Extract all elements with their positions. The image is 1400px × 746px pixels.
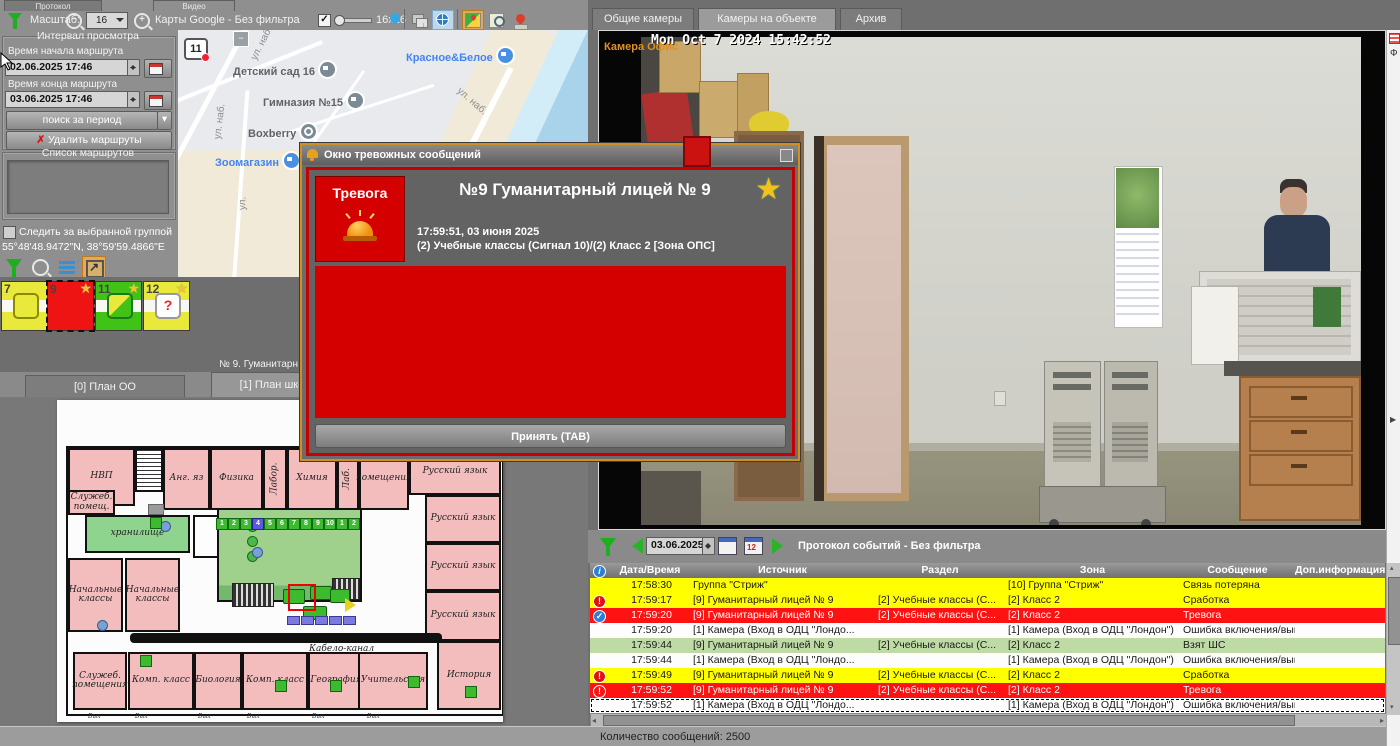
object-tile-9[interactable]: 9★ — [47, 281, 94, 331]
plan-room-Комп. класс: Комп. класс — [128, 652, 194, 710]
cell-Источник: [9] Гуманитарный лицей № 9 — [690, 593, 875, 608]
cell-Доп.информация — [1295, 593, 1385, 608]
cell-Зона: [2] Класс 2 — [1005, 668, 1180, 683]
cell-Источник: [1] Камера (Вход в ОДЦ "Лондо... — [690, 623, 875, 638]
log-filter-funnel-icon[interactable] — [600, 538, 616, 549]
room-label: Начальные классы — [126, 586, 179, 605]
application-window: Протокол Видео Масштаб: − 16 + Карты Goo… — [0, 0, 1400, 746]
lock-icon — [496, 46, 515, 65]
table-row[interactable]: !17:59:49[9] Гуманитарный лицей № 9[2] У… — [590, 668, 1385, 683]
scale-select[interactable]: 16 — [86, 12, 128, 29]
room-label: Химия — [296, 474, 327, 483]
plan-room-blank — [135, 448, 163, 492]
camera-tab-2[interactable]: Камеры на объекте — [698, 8, 836, 30]
cell-Сообщение: Ошибка включения/выключения за... — [1180, 623, 1295, 638]
cell-Источник: [9] Гуманитарный лицей № 9 — [690, 608, 875, 623]
follow-group-label: Следить за выбранной группой — [19, 226, 172, 238]
plan-room-История: История — [437, 641, 501, 710]
map-collapse-control[interactable]: − — [233, 31, 249, 47]
strip-red-icon — [1389, 33, 1400, 44]
alarm-restore-icon[interactable] — [780, 149, 793, 162]
strip-letter: Ф — [1390, 48, 1398, 59]
room-label: Служеб. помещения — [72, 672, 128, 691]
route-end-spinner[interactable] — [127, 91, 140, 108]
cell-Сообщение: Сработка — [1180, 668, 1295, 683]
dot-icon — [299, 122, 318, 141]
icon-size-checkbox[interactable]: ✓ — [318, 14, 331, 27]
cell-Дата/Время: 17:59:49 — [610, 668, 690, 683]
poi-label: Гимназия №15 — [263, 97, 343, 109]
left-bottom-scrollbar[interactable] — [0, 726, 588, 746]
poi-label: Детский сад 16 — [233, 66, 315, 78]
map-poi-Boxberry[interactable]: Boxberry — [248, 122, 318, 141]
previous-day-icon[interactable] — [624, 538, 643, 554]
table-row[interactable]: 17:58:30Группа "Стриж"[10] Группа "Стриж… — [590, 578, 1385, 593]
column-header-Доп.информация[interactable]: Доп.информация — [1295, 563, 1385, 578]
alarm-window-title: Окно тревожных сообщений — [324, 149, 481, 161]
map-marker-11[interactable]: 11 — [184, 38, 208, 60]
cell-Раздел: [2] Учебные классы (С... — [875, 638, 1005, 653]
bag-icon — [282, 151, 301, 170]
plan-room-хранилище: хранилище — [85, 515, 190, 553]
table-row[interactable]: 17:59:44[9] Гуманитарный лицей № 9[2] Уч… — [590, 638, 1385, 653]
room-label: помещения — [356, 474, 412, 483]
scale-value: 16 — [96, 15, 107, 26]
route-start-calendar-button[interactable] — [144, 59, 172, 78]
cell-Дата/Время: 17:59:52 — [610, 683, 690, 698]
poi-label: Boxberry — [248, 128, 296, 140]
cell-Источник: [9] Гуманитарный лицей № 9 — [690, 638, 875, 653]
check-row-icon: ✓ — [593, 610, 606, 623]
cell-Доп.информация — [1295, 578, 1385, 593]
zoom-out-icon[interactable]: − — [66, 13, 82, 29]
plan-room-Начальные классы: Начальные классы — [125, 558, 180, 632]
tab-video[interactable]: Видео — [153, 0, 235, 11]
plan-sensor-3: 3 — [240, 518, 252, 530]
red-pin-icon[interactable] — [510, 10, 532, 30]
alarm-label: Тревога — [316, 185, 404, 201]
camera-tab-3[interactable]: Архив — [840, 8, 902, 30]
calendar-icon[interactable] — [718, 537, 737, 555]
school-icon — [346, 91, 365, 110]
filter-funnel-icon[interactable] — [8, 13, 22, 22]
group-search-icon[interactable] — [32, 259, 49, 276]
map-poi-Гимназия №15[interactable]: Гимназия №15 — [263, 91, 365, 110]
follow-group-checkbox[interactable] — [3, 226, 16, 239]
plan-sensor-2: 2 — [348, 518, 360, 530]
cell-Раздел — [875, 578, 1005, 593]
route-end-label: Время конца маршрута — [8, 79, 117, 90]
cell-Сообщение: Связь потеряна — [1180, 578, 1295, 593]
route-end-input[interactable]: 03.06.2025 17:46 — [5, 91, 129, 108]
cell-Доп.информация — [1295, 638, 1385, 653]
cell-Раздел: [2] Учебные классы (С... — [875, 593, 1005, 608]
cell-Доп.информация — [1295, 698, 1385, 713]
room-label: Физика — [219, 474, 254, 483]
plan-sensor-6: 6 — [276, 518, 288, 530]
plan-camera-icon — [148, 504, 164, 515]
cell-Зона: [1] Камера (Вход в ОДЦ "Лондон") — [1005, 653, 1180, 668]
cell-Раздел — [875, 623, 1005, 638]
plan-sensor-1: 1 — [336, 518, 348, 530]
plan-stairs-hatch — [232, 583, 274, 607]
route-end-calendar-button[interactable] — [144, 91, 172, 110]
info-icon: i — [593, 565, 606, 578]
selected-object-status: № 9. Гуманитарн — [100, 359, 298, 370]
room-label: Начальные классы — [69, 586, 122, 605]
room-label: Служеб. помещ. — [70, 493, 113, 512]
plan-room-Русский язык: Русский язык — [425, 543, 501, 591]
room-label: хранилище — [111, 529, 165, 538]
room-label: История — [447, 671, 491, 680]
map-object-marker[interactable] — [683, 136, 711, 167]
plan-room-Служеб. помещ.: Служеб. помещ. — [68, 490, 115, 515]
tile-number: 7 — [4, 282, 11, 296]
room-label: Русский язык — [431, 611, 496, 620]
cell-Раздел — [875, 653, 1005, 668]
cell-Зона: [2] Класс 2 — [1005, 608, 1180, 623]
layers-icon[interactable]: ↓ — [409, 10, 431, 30]
room-sensor — [140, 655, 152, 667]
cell-Раздел: [2] Учебные классы (С... — [875, 608, 1005, 623]
cell-Сообщение: Ошибка включения/выключения за... — [1180, 698, 1295, 713]
poi-label: Зоомагазин — [215, 157, 279, 169]
object-tile-7[interactable]: 7 — [1, 281, 48, 331]
exit-label: Вых — [88, 713, 101, 720]
cell-Зона: [2] Класс 2 — [1005, 683, 1180, 698]
plan-sensor-8: 8 — [300, 518, 312, 530]
street-label: ул. наб. — [212, 103, 227, 140]
alarm-star-icon: ★ — [755, 172, 782, 207]
school-icon — [318, 60, 337, 79]
cell-Сообщение: Сработка — [1180, 593, 1295, 608]
alarm-time: 17:59:51, 03 июня 2025 — [417, 226, 539, 238]
tile-star-icon: ★ — [79, 280, 92, 297]
room-sensor — [275, 680, 287, 692]
plan-room-Начальные классы: Начальные классы — [68, 558, 123, 632]
route-start-input[interactable]: 02.06.2025 17:46 — [5, 59, 129, 76]
cell-Доп.информация — [1295, 623, 1385, 638]
cell-Зона: [2] Класс 2 — [1005, 638, 1180, 653]
column-header-Дата/Время[interactable]: Дата/Время — [610, 563, 691, 578]
exit-label: Вых — [247, 713, 260, 720]
search-period-button[interactable]: поиск за период — [6, 111, 158, 130]
room-label: Анг. яз — [170, 474, 204, 483]
map-poi-Зоомагазин[interactable]: Зоомагазин — [215, 151, 301, 170]
tab-protocol[interactable]: Протокол — [4, 0, 102, 11]
group-filter-funnel-icon[interactable] — [6, 259, 22, 270]
room-label: Лабор. — [270, 463, 279, 495]
room-sensor — [150, 517, 162, 529]
alert-row-icon: ! — [593, 670, 606, 683]
log-date-input[interactable]: 03.06.2025 — [646, 537, 708, 555]
siren-icon — [343, 215, 377, 241]
alarm-indicator: Тревога — [315, 176, 405, 262]
icon-size-slider-thumb[interactable] — [334, 15, 345, 26]
cell-Дата/Время: 17:59:44 — [610, 653, 690, 668]
column-header-Источник[interactable]: Источник — [690, 563, 876, 578]
cell-Зона: [1] Камера (Вход в ОДЦ "Лондон") — [1005, 698, 1180, 713]
tile-state-icon — [13, 293, 39, 319]
room-label: Лаб. — [343, 468, 352, 489]
cell-Доп.информация — [1295, 668, 1385, 683]
camera-tab-1[interactable]: Общие камеры — [592, 8, 694, 30]
tile-star-icon: ★ — [175, 280, 188, 297]
cell-Источник: [9] Гуманитарный лицей № 9 — [690, 668, 875, 683]
table-row[interactable]: !17:59:52[9] Гуманитарный лицей № 9[2] У… — [590, 683, 1385, 698]
map-search-icon[interactable] — [486, 10, 508, 30]
accept-alarm-button[interactable]: Принять (TAB) — [315, 424, 786, 448]
cell-Сообщение: Ошибка включения/выключения за... — [1180, 653, 1295, 668]
alarm-message-window[interactable]: Окно тревожных сообщений Тревога №9 Гума… — [300, 143, 800, 461]
room-label: Биология — [195, 676, 240, 685]
plan-room-Лабор.: Лабор. — [263, 448, 287, 510]
coordinates-label: 55°48'48.9472"N, 38°59'59.4866"E — [2, 241, 165, 253]
route-listbox[interactable] — [7, 160, 169, 214]
table-row[interactable]: ✓17:59:20[9] Гуманитарный лицей № 9[2] У… — [590, 608, 1385, 623]
cell-Дата/Время: 17:59:20 — [610, 623, 690, 638]
room-label: НВП — [90, 472, 112, 481]
exit-label: Вых — [312, 713, 325, 720]
object-tile-11[interactable]: 11★ — [95, 281, 142, 331]
table-row[interactable]: 17:59:52[1] Камера (Вход в ОДЦ "Лондо...… — [590, 698, 1385, 713]
header-icon-column: i — [590, 563, 611, 578]
log-title: Протокол событий - Без фильтра — [798, 540, 981, 552]
plan-sensor-4: 4 — [252, 518, 264, 530]
plan-marker-triangle — [345, 598, 363, 612]
street-label: ул. наб. — [249, 30, 275, 62]
alert-row-icon: ! — [593, 595, 606, 608]
cell-Раздел — [875, 698, 1005, 713]
plan-sensor-5: 5 — [264, 518, 276, 530]
tab-plan-oo[interactable]: [0] План ОО — [25, 375, 185, 398]
search-period-dropdown[interactable]: ▾ — [157, 111, 172, 130]
column-header-Раздел[interactable]: Раздел — [875, 563, 1006, 578]
cell-Дата/Время: 17:59:17 — [610, 593, 690, 608]
cell-Дата/Время: 17:59:20 — [610, 608, 690, 623]
cell-Дата/Время: 17:59:44 — [610, 638, 690, 653]
cell-Зона: [2] Класс 2 — [1005, 593, 1180, 608]
tile-number: 9 — [50, 282, 57, 296]
room-sensor — [465, 686, 477, 698]
route-start-label: Время начала маршрута — [8, 46, 123, 57]
column-header-Сообщение[interactable]: Сообщение — [1180, 563, 1296, 578]
delete-routes-label: Удалить маршруты — [48, 134, 142, 146]
cell-Зона: [1] Камера (Вход в ОДЦ "Лондон") — [1005, 623, 1180, 638]
plan-room-Служеб. помещения: Служеб. помещения — [73, 652, 127, 710]
event-log-toolbar: 03.06.2025 Протокол событий - Без фильтр… — [588, 530, 1400, 563]
street-label: ул. — [237, 197, 248, 211]
event-log-table[interactable]: iДата/ВремяИсточникРазделЗонаСообщениеДо… — [590, 563, 1385, 713]
camera-name-label: Камера Офис — [604, 41, 678, 53]
cell-Источник: Группа "Стриж" — [690, 578, 875, 593]
column-header-Зона[interactable]: Зона — [1005, 563, 1181, 578]
room-label: Русский язык — [423, 467, 488, 476]
room-sensor — [330, 680, 342, 692]
cell-Зона: [10] Группа "Стриж" — [1005, 578, 1180, 593]
tile-star-icon: ★ — [127, 280, 140, 297]
cell-Доп.информация — [1295, 683, 1385, 698]
cell-Раздел: [2] Учебные классы (С... — [875, 668, 1005, 683]
alert2-row-icon: ! — [593, 685, 606, 698]
tile-number: 11 — [98, 282, 111, 296]
cell-Сообщение: Тревога — [1180, 683, 1295, 698]
plan-sensor-10: 10 — [324, 518, 336, 530]
cell-Дата/Время: 17:58:30 — [610, 578, 690, 593]
cell-Источник: [9] Гуманитарный лицей № 9 — [690, 683, 875, 698]
globe-icon[interactable] — [432, 10, 454, 30]
map-poi-Детский сад 16[interactable]: Детский сад 16 — [233, 60, 337, 79]
map-poi-Красное&Белое[interactable]: Красное&Белое — [406, 46, 515, 65]
alarm-object-title: №9 Гуманитарный лицей № 9 — [409, 180, 761, 200]
object-tile-12[interactable]: ?12★ — [143, 281, 190, 331]
room-sensor — [408, 676, 420, 688]
plan-room-Биология: Биология — [194, 652, 242, 710]
map-source-label: Карты Google - Без фильтра — [155, 14, 300, 26]
exit-label: Вых — [198, 713, 211, 720]
plan-sensor-7: 7 — [288, 518, 300, 530]
exit-label: Вых — [135, 713, 148, 720]
tile-number: 12 — [146, 282, 159, 296]
cell-Сообщение: Взят ШС — [1180, 638, 1295, 653]
cell-Доп.информация — [1295, 608, 1385, 623]
cell-Источник: [1] Камера (Вход в ОДЦ "Лондо... — [690, 653, 875, 668]
exit-label: Вых — [367, 713, 380, 720]
alarm-zone-highlight — [288, 584, 316, 611]
table-row[interactable]: 17:59:44[1] Камера (Вход в ОДЦ "Лондо...… — [590, 653, 1385, 668]
message-count-status: Количество сообщений: 2500 — [588, 726, 1400, 746]
cell-Дата/Время: 17:59:52 — [610, 698, 690, 713]
route-list-title: Список маршрутов — [2, 147, 174, 159]
route-group-title: Интервал просмотра — [2, 30, 174, 42]
cell-Доп.информация — [1295, 653, 1385, 668]
plan-room-Русский язык: Русский язык — [425, 495, 501, 543]
plan-sensor-9: 9 — [312, 518, 324, 530]
alarm-window-titlebar[interactable]: Окно тревожных сообщений — [302, 145, 798, 165]
log-date-spinner[interactable] — [702, 537, 715, 555]
mouse-cursor — [0, 52, 14, 72]
route-start-spinner[interactable] — [127, 59, 140, 76]
room-label: Комп. класс — [132, 676, 190, 685]
calendar-12-icon[interactable] — [744, 537, 763, 555]
right-side-strip[interactable]: Ф ▶ ▴ ▾ — [1386, 30, 1400, 746]
next-day-icon[interactable] — [772, 538, 791, 554]
strip-expand-arrow[interactable]: ▶ — [1390, 415, 1396, 424]
plan-room-Физика: Физика — [210, 448, 263, 510]
alarm-window-body: Тревога №9 Гуманитарный лицей № 9 ★ 17:5… — [306, 167, 795, 456]
poi-label: Красное&Белое — [406, 52, 493, 64]
log-vertical-scrollbar[interactable]: ▴ ▾ — [1387, 563, 1400, 715]
plan-sensor-1: 1 — [216, 518, 228, 530]
cable-channel-label: Кабело-канал — [309, 645, 374, 654]
cell-Раздел: [2] Учебные классы (С... — [875, 683, 1005, 698]
alarm-zone: (2) Учебные классы (Сигнал 10)/(2) Класс… — [417, 240, 715, 252]
room-label: Русский язык — [431, 562, 496, 571]
plan-room-Анг. яз: Анг. яз — [163, 448, 210, 510]
cell-Источник: [1] Камера (Вход в ОДЦ "Лондо... — [690, 698, 875, 713]
room-label: Русский язык — [431, 514, 496, 523]
alarm-bell-icon — [307, 149, 318, 158]
google-maps-icon[interactable] — [462, 10, 484, 30]
plan-sensor-2: 2 — [228, 518, 240, 530]
table-row[interactable]: 17:59:20[1] Камера (Вход в ОДЦ "Лондо...… — [590, 623, 1385, 638]
cable-channel — [130, 633, 442, 643]
table-row[interactable]: !17:59:17[9] Гуманитарный лицей № 9[2] У… — [590, 593, 1385, 608]
zoom-in-icon[interactable]: + — [134, 13, 150, 29]
cell-Сообщение: Тревога — [1180, 608, 1295, 623]
alarm-red-body — [315, 266, 786, 418]
